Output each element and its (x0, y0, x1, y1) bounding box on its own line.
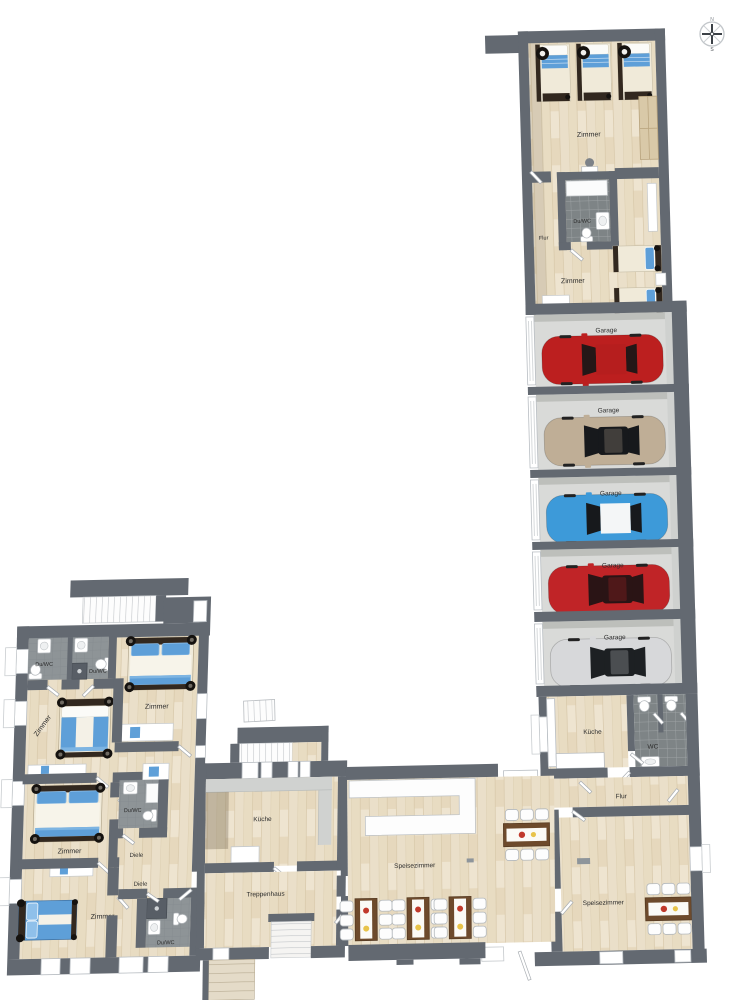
svg-text:Treppenhaus: Treppenhaus (247, 891, 286, 899)
svg-text:Zimmer: Zimmer (577, 131, 602, 139)
svg-text:Küche: Küche (253, 816, 272, 823)
svg-text:Speisezimmer: Speisezimmer (583, 899, 625, 907)
svg-text:Küche: Küche (583, 729, 602, 736)
svg-text:Du/WC: Du/WC (573, 219, 591, 225)
svg-text:Zimmer: Zimmer (561, 278, 586, 286)
svg-text:Garage: Garage (598, 407, 620, 414)
svg-text:Garage: Garage (602, 562, 624, 569)
svg-text:WC: WC (647, 743, 658, 750)
svg-text:Flur: Flur (539, 235, 549, 241)
svg-text:Garage: Garage (600, 490, 622, 497)
svg-text:Du/WC: Du/WC (35, 662, 53, 668)
svg-text:N: N (710, 17, 714, 23)
svg-text:Diele: Diele (134, 882, 149, 888)
svg-text:Garage: Garage (604, 634, 626, 641)
svg-text:Du/WC: Du/WC (89, 669, 107, 675)
svg-text:Speisezimmer: Speisezimmer (394, 862, 436, 870)
svg-text:Du/WC: Du/WC (124, 808, 142, 814)
svg-text:Zimmer: Zimmer (145, 703, 170, 711)
svg-text:Garage: Garage (595, 327, 617, 334)
svg-text:Diele: Diele (129, 853, 144, 859)
svg-text:Du/WC: Du/WC (157, 940, 175, 946)
svg-text:Flur: Flur (616, 793, 628, 800)
svg-text:Zimmer: Zimmer (58, 848, 83, 856)
